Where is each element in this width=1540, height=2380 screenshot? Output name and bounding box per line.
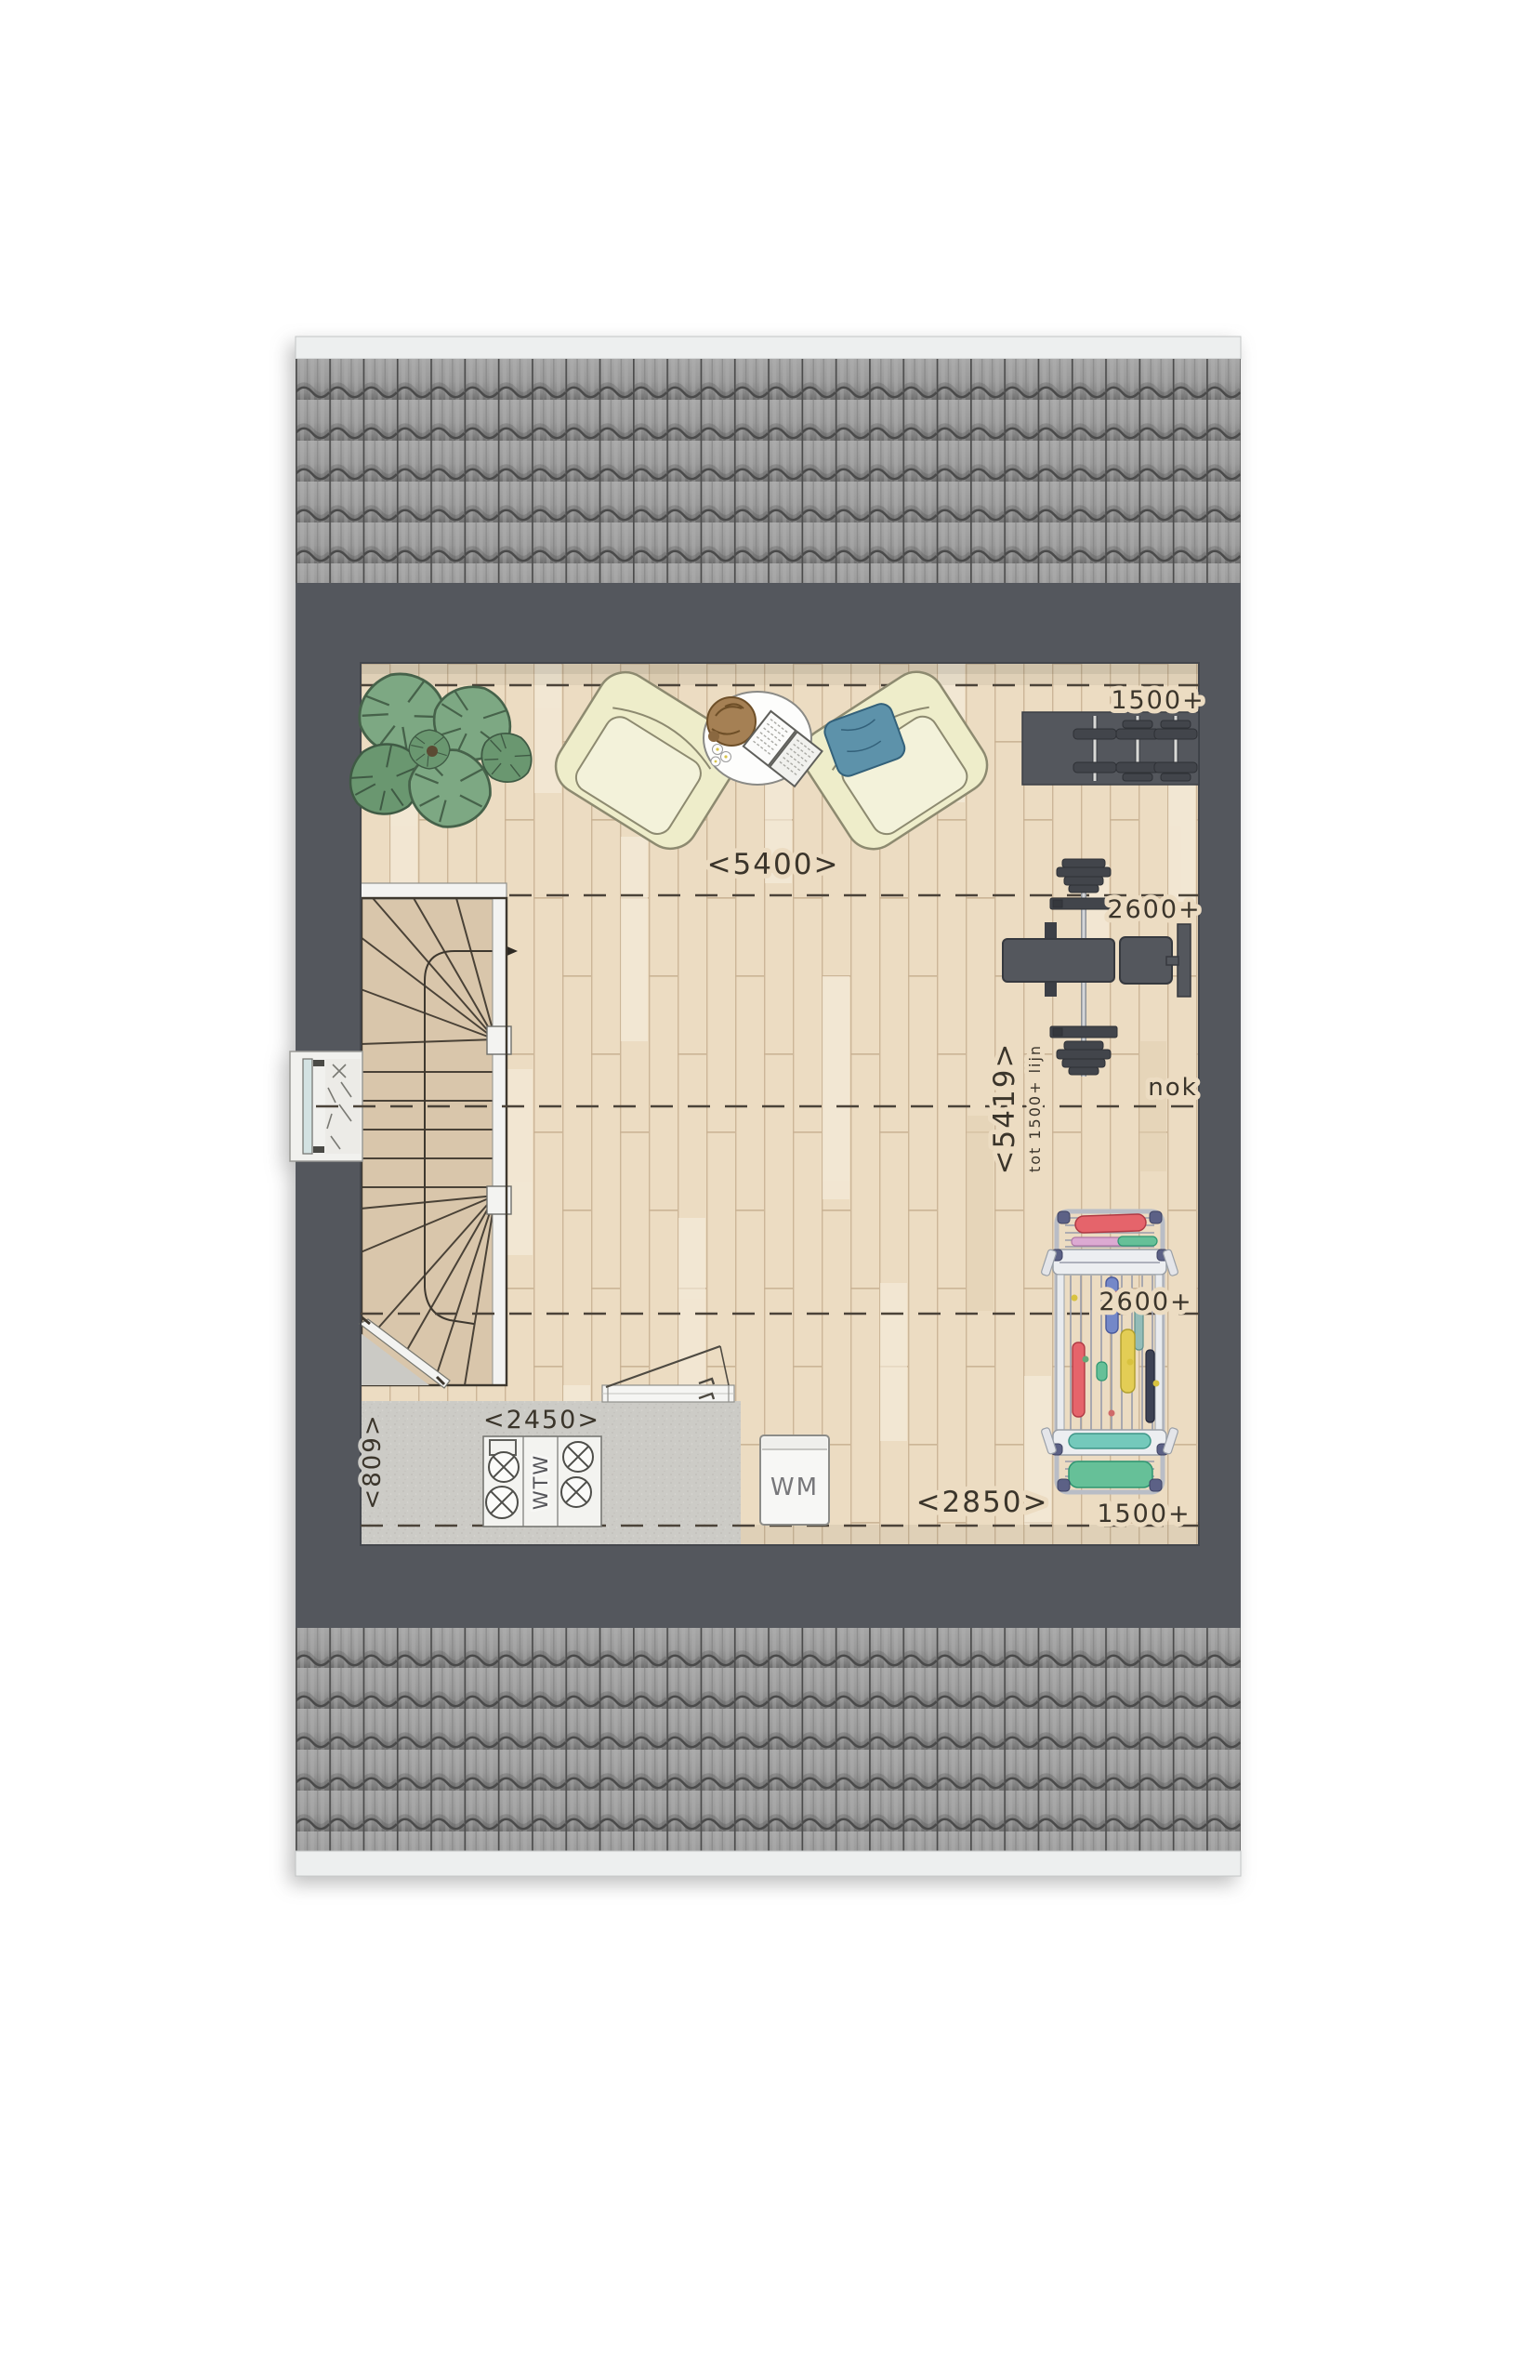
label-5400: <5400> — [707, 848, 840, 881]
stair-top-edge — [361, 883, 507, 899]
roof-ridge-strip-bottom — [296, 1851, 1241, 1876]
laundry-item — [1075, 1214, 1147, 1234]
label-nok: nok — [1148, 1074, 1197, 1102]
roof-bottom — [296, 1628, 1241, 1876]
label-2850: <2850> — [916, 1486, 1049, 1519]
laundry-item — [1118, 1236, 1157, 1246]
label-wtw: WTW — [530, 1454, 552, 1510]
label-2600-top: 2600+ — [1107, 895, 1201, 924]
building-block: 1500+ <5400> 2600+ <5419> tot 1500+ lijn… — [290, 337, 1241, 1876]
label-2450: <2450> — [483, 1406, 600, 1435]
laundry-item — [1069, 1461, 1152, 1487]
roof-tiles-bottom — [296, 1628, 1241, 1851]
window-glass — [303, 1059, 312, 1154]
low-headroom-zone-top — [361, 663, 1199, 685]
roof-ridge-strip-top — [296, 337, 1241, 359]
label-5419-note: tot 1500+ lijn — [1026, 1044, 1044, 1172]
label-1500-top: 1500+ — [1111, 686, 1204, 715]
roof-top — [296, 337, 1241, 583]
dumbbell-rack — [1022, 712, 1199, 785]
laundry-item — [1069, 1434, 1151, 1448]
bench-backrest — [1120, 937, 1172, 984]
sleeping-pet — [707, 697, 756, 746]
label-2600-bottom: 2600+ — [1099, 1288, 1192, 1316]
wall-top — [296, 583, 1241, 663]
bench-stand — [1178, 924, 1191, 997]
staircase — [360, 883, 518, 1388]
bench-seat — [1003, 939, 1114, 982]
stair-stringer — [493, 898, 507, 1385]
roof-tiles-top — [296, 359, 1241, 583]
wall-right — [1199, 663, 1241, 1545]
label-1500-bottom: 1500+ — [1097, 1500, 1191, 1528]
label-5419: <5419> — [988, 1042, 1021, 1175]
wall-bottom — [296, 1545, 1241, 1628]
label-wm: WM — [770, 1474, 819, 1501]
laundry-item — [1072, 1237, 1124, 1246]
floorplan-page: 1500+ <5400> 2600+ <5419> tot 1500+ lijn… — [0, 0, 1540, 2380]
label-809: <809> — [359, 1413, 387, 1509]
